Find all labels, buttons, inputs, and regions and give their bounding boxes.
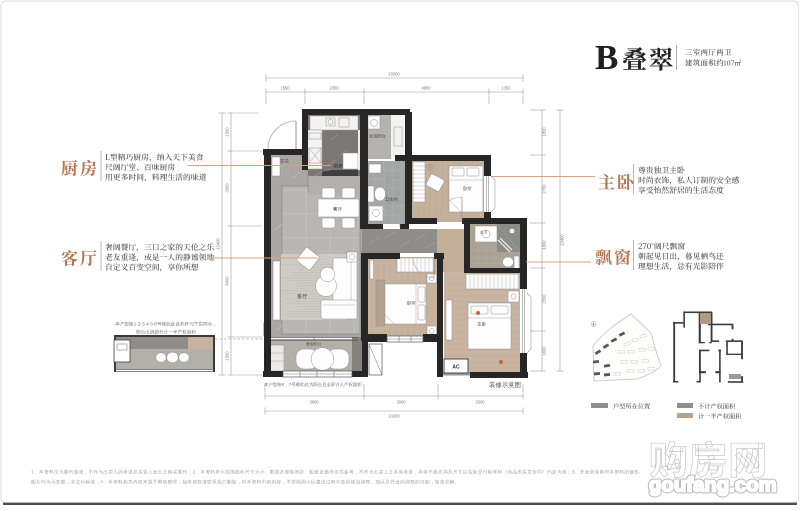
svg-text:10400: 10400 [216,238,221,250]
svg-text:1350: 1350 [501,86,511,91]
svg-text:1550: 1550 [280,86,290,91]
svg-text:10200: 10200 [388,414,400,419]
svg-text:3000: 3000 [396,400,406,405]
svg-text:AC: AC [452,365,460,371]
svg-text:1600: 1600 [542,346,547,356]
svg-text:2700: 2700 [542,184,547,194]
svg-text:2500: 2500 [542,294,547,304]
svg-text:3000: 3000 [225,183,230,193]
svg-text:10400: 10400 [560,234,565,246]
svg-text:1800: 1800 [542,127,547,137]
svg-text:2350: 2350 [329,86,339,91]
svg-text:1500: 1500 [225,127,230,137]
svg-text:goufang.com: goufang.com [649,475,777,497]
svg-text:3900: 3900 [309,400,319,405]
svg-text:B: B [595,38,618,77]
svg-text:4400: 4400 [225,276,230,286]
svg-text:3300: 3300 [475,400,485,405]
svg-text:1500: 1500 [225,351,230,361]
svg-text:10200: 10200 [388,72,400,77]
svg-text:4950: 4950 [421,86,431,91]
svg-text:1800: 1800 [542,240,547,250]
svg-text:107m: 107m [723,59,740,68]
